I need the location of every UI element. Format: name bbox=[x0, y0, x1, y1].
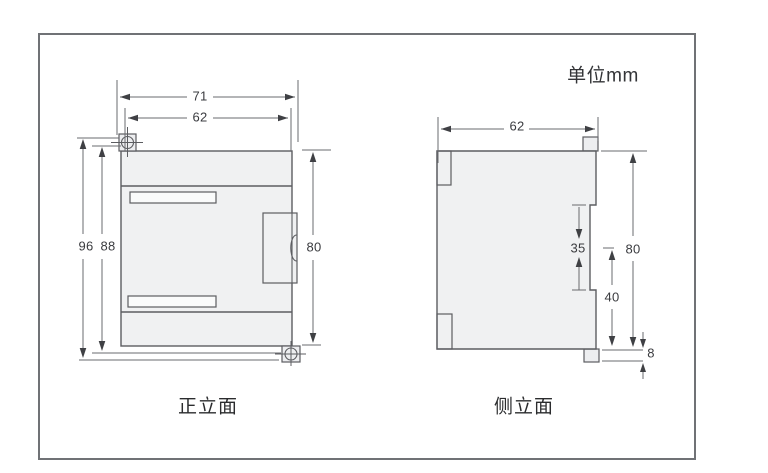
side-top-tab bbox=[583, 137, 598, 151]
dim-label-front-mount-height: 88 bbox=[100, 240, 115, 253]
dim-label-front-overall-height: 96 bbox=[78, 240, 93, 253]
dim-label-front-overall-width: 71 bbox=[192, 90, 207, 103]
dim-label-side-depth: 62 bbox=[509, 120, 524, 133]
dim-label-side-din-rail: 35 bbox=[570, 242, 585, 255]
side-bottom-tab bbox=[584, 349, 599, 362]
front-view-drawing bbox=[111, 127, 306, 366]
dim-label-side-body-height: 80 bbox=[625, 243, 640, 256]
side-view-caption: 侧立面 bbox=[494, 398, 554, 417]
dimension-drawing-page: 单位mm 71 62 96 88 80 正立面 62 35 80 40 8 侧立… bbox=[0, 0, 768, 473]
dim-label-front-body-height: 80 bbox=[306, 241, 321, 254]
dim-label-side-lower-height: 40 bbox=[604, 291, 619, 304]
front-upper-slot bbox=[130, 192, 216, 203]
front-view-caption: 正立面 bbox=[178, 398, 238, 417]
dim-label-side-tab-height: 8 bbox=[647, 347, 655, 360]
unit-label: 单位mm bbox=[567, 67, 639, 86]
technical-drawing bbox=[0, 0, 768, 473]
front-lower-slot bbox=[128, 296, 216, 307]
dim-label-front-body-width: 62 bbox=[192, 111, 207, 124]
